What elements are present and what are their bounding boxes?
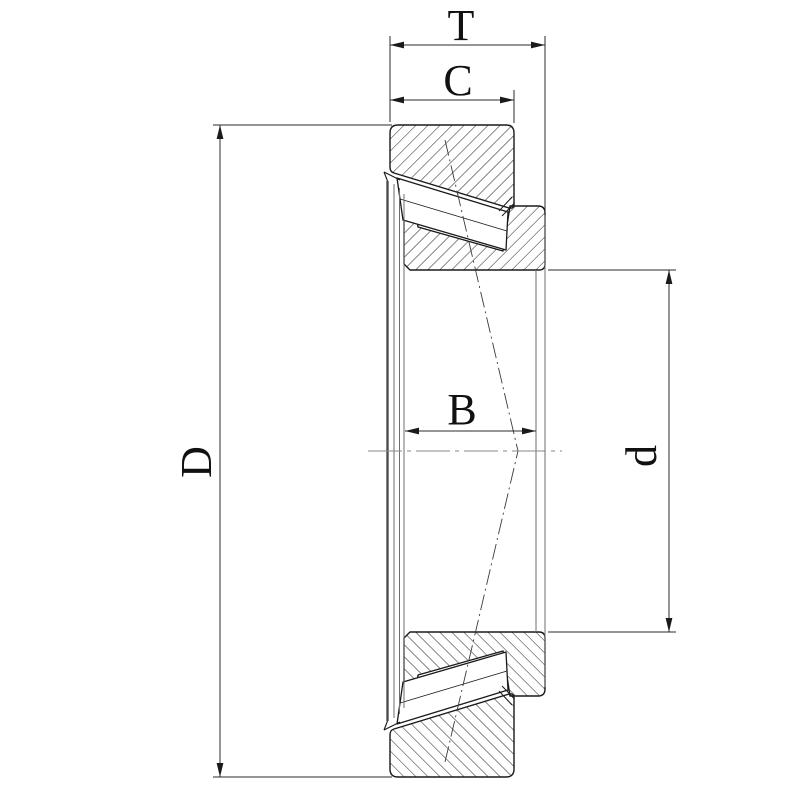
arrowhead-right: [500, 97, 514, 104]
arrowhead-bottom: [666, 618, 673, 632]
arrowhead-top: [217, 125, 224, 139]
dim-label-bore-diameter: d: [617, 445, 666, 467]
dimension-D: [213, 125, 392, 777]
arrowhead-bottom: [217, 763, 224, 777]
bearing-cross-section-drawing: T C B D d: [0, 0, 800, 800]
dim-label-cup-width: C: [443, 56, 472, 105]
arrowhead-left: [390, 42, 404, 49]
dim-label-total-width: T: [448, 1, 475, 50]
arrowhead-left: [405, 428, 419, 435]
arrowhead-right: [531, 42, 545, 49]
dim-label-outer-diameter: D: [172, 446, 221, 478]
dim-label-cone-width: B: [447, 385, 476, 434]
bearing-drawing-page: T C B D d: [0, 0, 800, 800]
arrowhead-right: [522, 428, 536, 435]
arrowhead-top: [666, 270, 673, 284]
arrowhead-left: [390, 97, 404, 104]
